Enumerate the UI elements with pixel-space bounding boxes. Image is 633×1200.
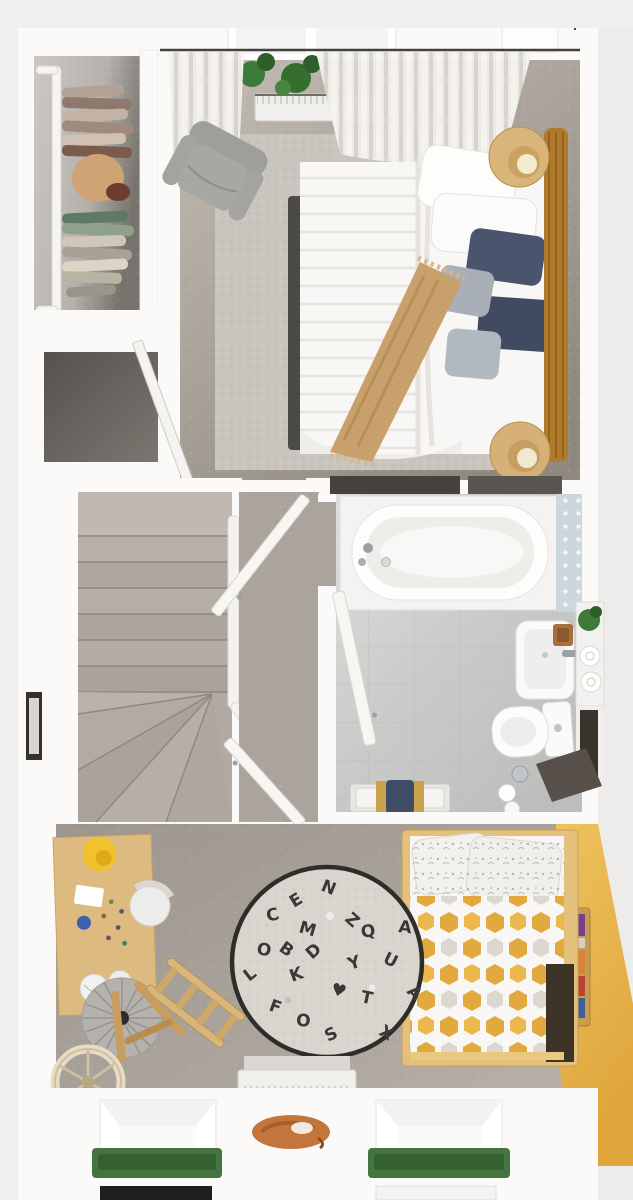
pillow-patterned: [444, 328, 502, 381]
window-reveal: [100, 1100, 216, 1126]
cat-patch: [291, 1122, 313, 1134]
radiator-shelf: [244, 1056, 350, 1071]
stair-landing-top: [78, 492, 232, 536]
window-box-inner: [98, 1154, 216, 1170]
top-margin: [0, 0, 633, 28]
bottom-exterior: [18, 1088, 598, 1200]
rug-shape: [326, 912, 334, 920]
bathroom: [318, 494, 604, 828]
wardrobe-bottom-wall: [18, 310, 180, 336]
tub-highlight: [380, 526, 524, 578]
tub-tap: [358, 558, 366, 566]
tub-faucet: [363, 543, 373, 553]
floor-plan-render: C O N E M Z Q U A K T X S F L O Y A B D: [0, 0, 633, 1200]
underbed-shadow: [546, 964, 574, 1062]
window-sill: [120, 1126, 196, 1148]
washbasin: [516, 621, 578, 699]
spare-roll: [499, 785, 516, 802]
wheel-hub: [82, 1076, 94, 1088]
bedroom: [132, 28, 598, 518]
floor-plan-svg: C O N E M Z Q U A K T X S F L O Y A B D: [0, 0, 633, 1200]
bathtub: [340, 496, 558, 610]
cupboard-bottom-wall: [18, 462, 180, 490]
paper: [74, 885, 104, 908]
wall-picture: [29, 698, 39, 754]
bathroom-doorway-floor: [318, 500, 336, 588]
lower-window-dark: [100, 1186, 212, 1200]
pillow-doodles: [412, 836, 564, 900]
bathroom-left-wall: [318, 494, 336, 502]
window-box-inner: [374, 1154, 504, 1170]
hexagon-pattern: [410, 896, 564, 1058]
tub-drain: [382, 558, 391, 567]
winder-steps: [78, 692, 232, 822]
bathroom-left-wall: [318, 586, 336, 824]
towel-roll: [581, 672, 601, 692]
stair-treads: [78, 536, 232, 692]
rug-letter: O: [296, 1011, 311, 1031]
towel-bench: [350, 780, 450, 814]
party-wall-shadow: [330, 476, 460, 494]
sleeping-cat: [252, 1115, 330, 1149]
towel-strap: [376, 781, 386, 813]
rug-shape: [369, 985, 376, 992]
window-sill: [398, 1126, 482, 1148]
banister: [228, 516, 239, 708]
shelf-unit: [576, 602, 604, 706]
kids-bed: [402, 830, 578, 1066]
bedside-lamp-bottom: [490, 422, 550, 482]
window-reveal: [376, 1100, 502, 1126]
lower-window-light: [376, 1186, 496, 1200]
party-wall-shadow: [468, 476, 562, 494]
bedroom-right-wall: [580, 28, 598, 480]
patterned-tile-strip: [556, 494, 582, 612]
toilet-roll-holder: [512, 766, 528, 782]
bed-foot-rail: [410, 1052, 564, 1060]
bedside-lamp-top: [489, 127, 549, 187]
towel-roll: [580, 646, 600, 666]
navy-towel: [386, 780, 414, 814]
towel-strap: [414, 781, 424, 813]
toilet: [490, 701, 574, 760]
rug-shape: [285, 997, 292, 1004]
wardrobe-right-wall: [140, 50, 158, 312]
